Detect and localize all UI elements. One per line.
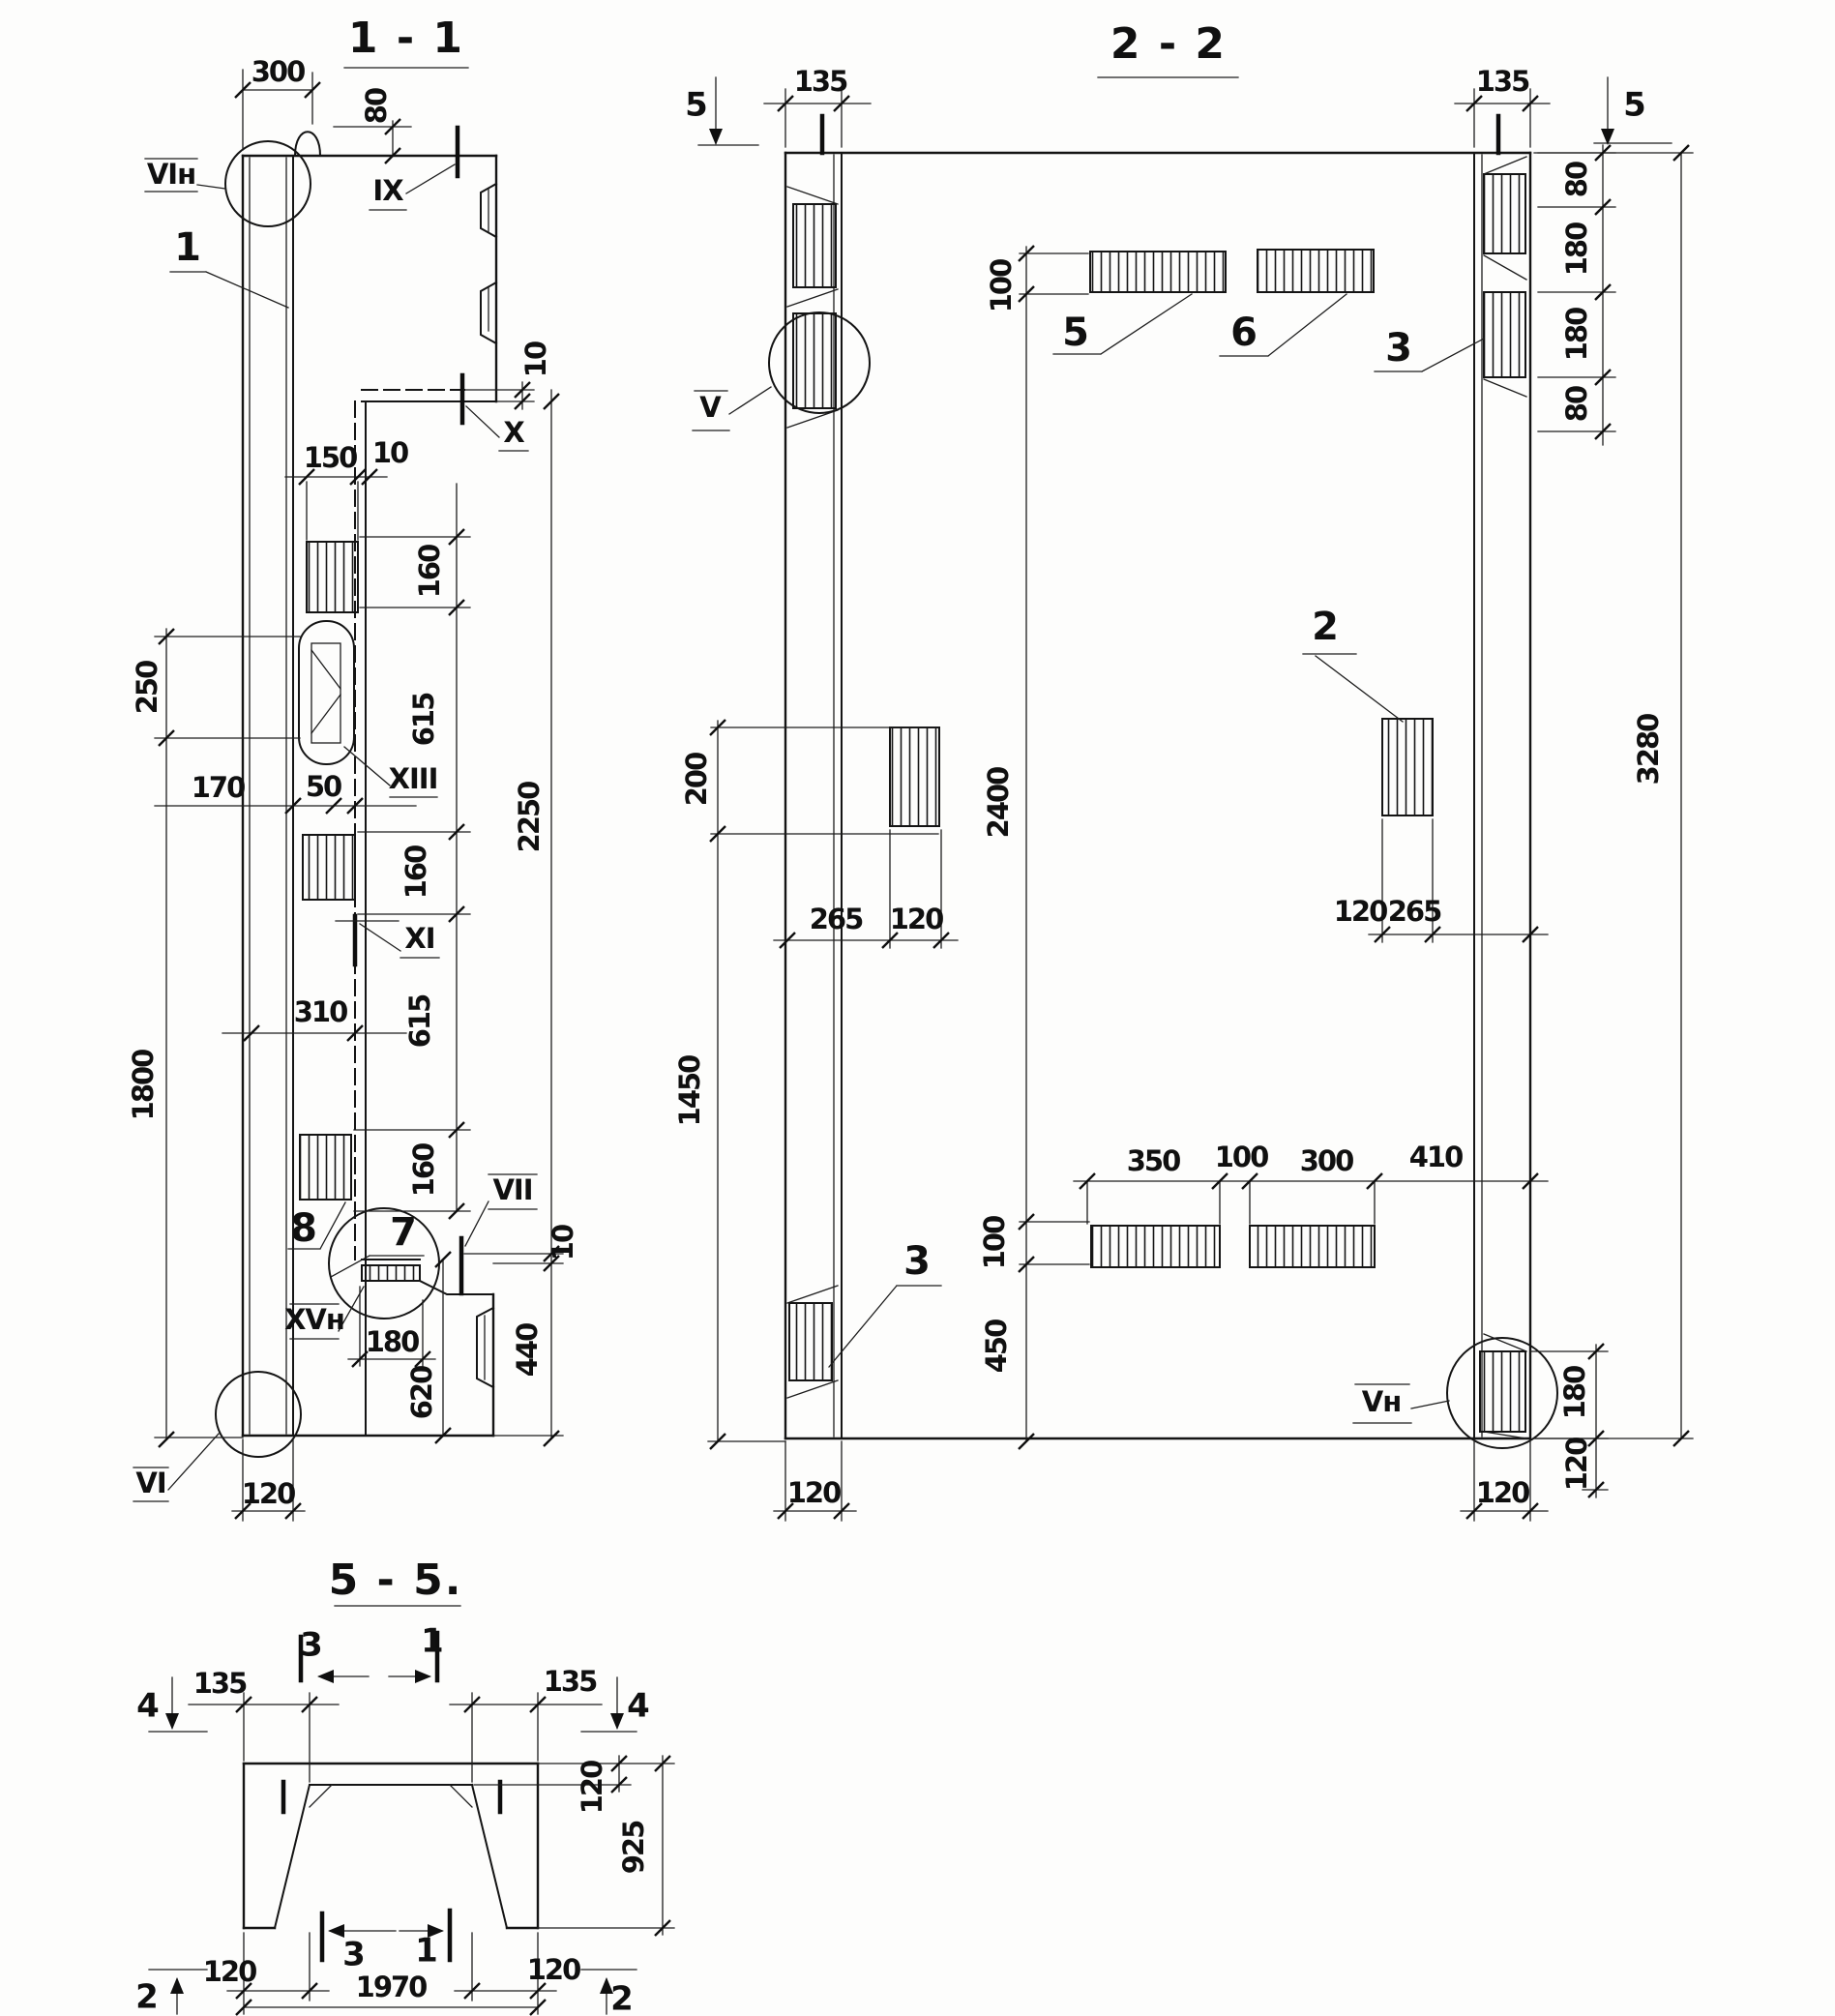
position-number: 8 <box>290 1206 317 1251</box>
dim-label: 160 <box>400 845 432 899</box>
cut-mark-label: 4 <box>627 1687 650 1726</box>
section-5-5-outline <box>244 1764 538 1928</box>
section-2-2-dimlines <box>708 89 1693 1521</box>
dim-label: 2400 <box>982 767 1015 839</box>
dim-label: 135 <box>193 1667 247 1700</box>
dim-label: 180 <box>1560 308 1593 361</box>
dim-label: 310 <box>294 995 347 1028</box>
dim-label: 300 <box>1300 1144 1353 1177</box>
cut-mark-label: 3 <box>342 1936 366 1974</box>
section-2-2-embeds <box>789 174 1525 1432</box>
dim-label: 200 <box>680 753 713 806</box>
detail-mark-ix: IX <box>372 174 403 207</box>
dim-label: 80 <box>1560 386 1593 422</box>
dim-label: 265 <box>810 903 863 935</box>
dim-label: 180 <box>1558 1366 1591 1419</box>
dim-label: 925 <box>617 1821 650 1874</box>
dim-label: 120 <box>242 1477 295 1510</box>
detail-mark-vn: Vн <box>1362 1385 1401 1418</box>
dim-label: 2250 <box>513 782 546 853</box>
dim-label: 615 <box>407 693 440 746</box>
dim-label: 80 <box>1560 162 1593 197</box>
dim-label: 3280 <box>1632 714 1665 786</box>
dim-label: 100 <box>1215 1141 1268 1173</box>
dim-label: 620 <box>405 1366 438 1419</box>
detail-mark-vin: VIн <box>147 158 195 191</box>
dim-label: 120 <box>203 1955 256 1988</box>
dim-label: 160 <box>413 545 446 598</box>
dim-label: 1800 <box>127 1050 160 1121</box>
dim-label: 170 <box>192 771 245 804</box>
cut-mark-label: 3 <box>300 1626 323 1665</box>
detail-mark-x: X <box>503 416 524 449</box>
position-number: 5 <box>1062 311 1089 355</box>
position-number: 6 <box>1230 311 1258 355</box>
dim-label: 120 <box>576 1761 608 1814</box>
dim-label: 135 <box>544 1665 597 1698</box>
structural-drawing: 1 - 1 300 80 10 150 10 160 615 160 615 1… <box>0 0 1835 2016</box>
dim-label: 160 <box>407 1143 440 1197</box>
detail-mark-xiii: XIII <box>389 762 438 795</box>
dim-label: 450 <box>980 1319 1013 1373</box>
section-5-5: 5 - 5. 3 1 4 4 135 135 120 925 120 120 1… <box>135 1556 674 2016</box>
dim-label: 120 <box>1476 1476 1529 1509</box>
detail-mark-v: V <box>699 391 722 424</box>
position-number: 3 <box>1385 326 1412 371</box>
lifting-loop <box>295 132 320 156</box>
dim-label: 10 <box>547 1225 579 1260</box>
dim-label: 350 <box>1127 1144 1180 1177</box>
dim-label: 135 <box>1476 65 1529 98</box>
dim-label: 10 <box>519 341 552 377</box>
dim-label: 100 <box>978 1216 1011 1269</box>
dim-label: 150 <box>304 441 357 474</box>
cut-mark-label: 5 <box>1623 86 1646 125</box>
position-number: 7 <box>390 1210 417 1255</box>
dim-label: 120 <box>1334 895 1387 928</box>
dim-label: 120 <box>1560 1438 1593 1491</box>
cut-mark-label: 1 <box>421 1622 444 1661</box>
dim-label: 120 <box>890 903 943 935</box>
section-2-2: 2 - 2 5 5 135 135 80 180 180 80 3280 200… <box>673 19 1693 1521</box>
dim-label: 300 <box>252 55 305 88</box>
cut-mark-label: 4 <box>136 1687 160 1726</box>
dim-label: 120 <box>527 1953 580 1986</box>
dim-label: 1450 <box>673 1055 706 1127</box>
dim-label: 250 <box>131 661 163 714</box>
dim-label: 80 <box>360 88 393 124</box>
dim-label: 440 <box>511 1323 544 1377</box>
dim-label: 1970 <box>356 1971 428 2003</box>
dim-label: 120 <box>787 1476 841 1509</box>
dim-label: 180 <box>366 1325 419 1358</box>
weld-plate-hatch <box>362 1265 420 1281</box>
dim-label: 410 <box>1409 1141 1463 1173</box>
detail-mark-xi: XI <box>404 922 434 955</box>
dim-label: 265 <box>1388 895 1441 928</box>
section-1-1: 1 - 1 300 80 10 150 10 160 615 160 615 1… <box>127 14 579 1521</box>
cut-mark-label: 1 <box>415 1932 438 1971</box>
cut-mark-label: 5 <box>685 86 708 125</box>
cut-mark-label: 2 <box>135 1978 159 2016</box>
detail-mark-vii: VII <box>492 1173 532 1206</box>
dim-label: 135 <box>794 65 847 98</box>
drawing-sheet: 1 - 1 300 80 10 150 10 160 615 160 615 1… <box>0 0 1835 2016</box>
position-number: 1 <box>174 225 201 270</box>
position-number: 2 <box>1312 605 1339 649</box>
section-title: 5 - 5. <box>329 1556 463 1605</box>
section-title: 2 - 2 <box>1110 19 1227 69</box>
cut-mark-label: 2 <box>610 1980 634 2016</box>
dim-label: 100 <box>985 259 1018 312</box>
dim-label: 615 <box>403 994 436 1048</box>
section-1-1-embeds <box>299 542 358 1200</box>
dim-label: 10 <box>372 436 408 469</box>
section-title: 1 - 1 <box>348 14 464 63</box>
section-2-2-detail-circles <box>769 312 1557 1448</box>
section-1-1-outline <box>243 132 496 1436</box>
detail-mark-vi: VI <box>135 1467 165 1499</box>
dim-label: 180 <box>1560 222 1593 276</box>
position-number: 3 <box>903 1239 931 1284</box>
dim-label: 50 <box>306 770 341 803</box>
detail-mark-xvn: XVн <box>284 1303 344 1336</box>
